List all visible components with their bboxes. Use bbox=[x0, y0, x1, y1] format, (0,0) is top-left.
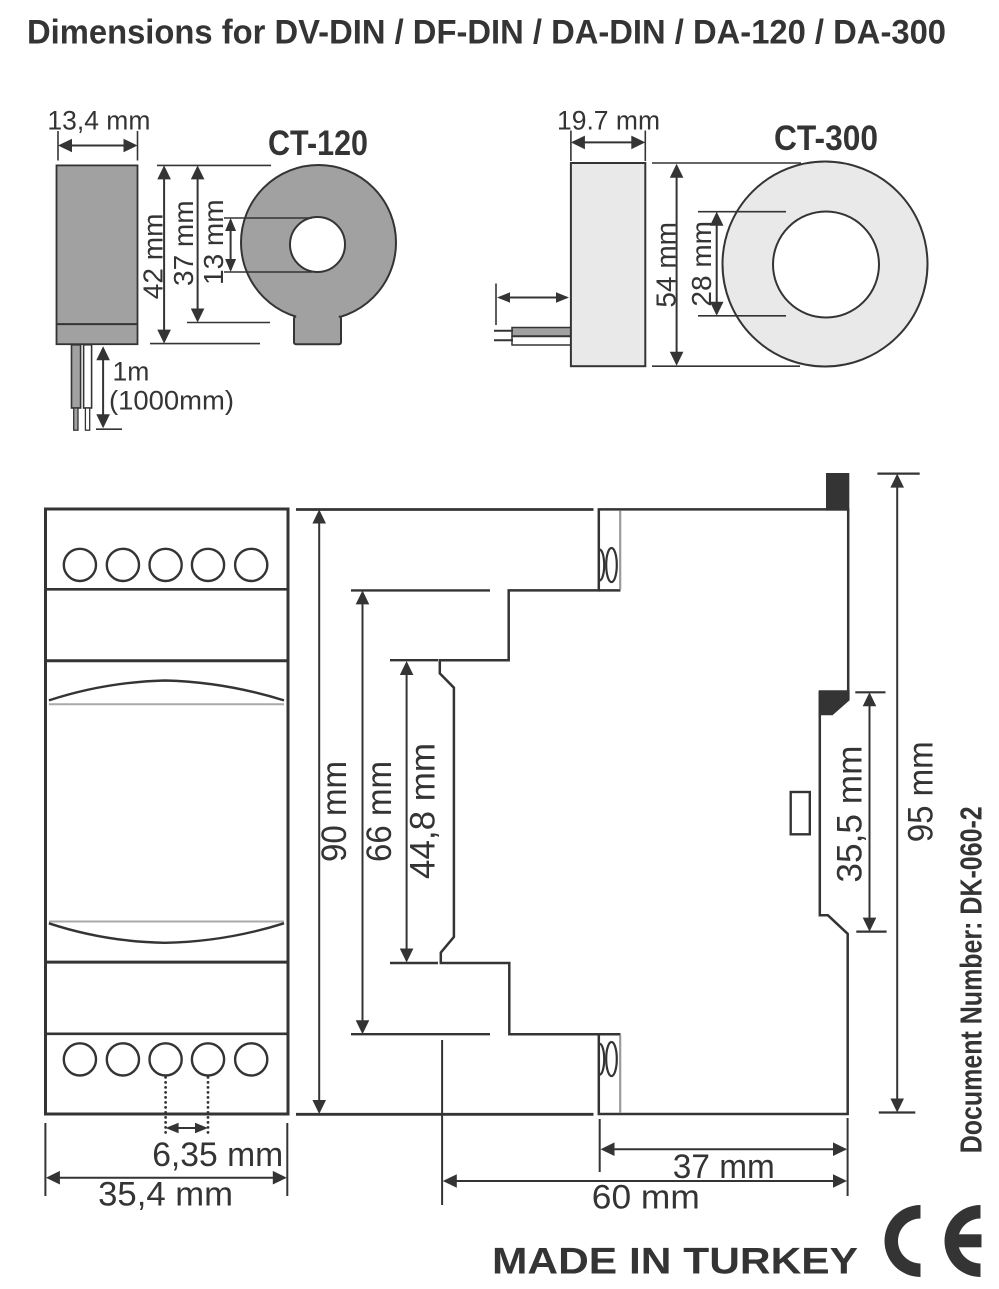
svg-text:MADE IN TURKEY: MADE IN TURKEY bbox=[492, 1240, 858, 1281]
svg-text:44,8 mm: 44,8 mm bbox=[403, 743, 442, 879]
svg-text:6,35 mm: 6,35 mm bbox=[152, 1136, 283, 1174]
svg-text:35,4 mm: 35,4 mm bbox=[98, 1176, 233, 1214]
svg-text:54 mm: 54 mm bbox=[650, 222, 681, 308]
svg-text:90 mm: 90 mm bbox=[315, 761, 354, 862]
svg-text:60 mm: 60 mm bbox=[592, 1179, 700, 1217]
svg-text:35,5 mm: 35,5 mm bbox=[831, 746, 870, 883]
svg-text:CT-120: CT-120 bbox=[268, 123, 368, 163]
svg-text:28 mm: 28 mm bbox=[686, 221, 717, 307]
svg-text:37 mm: 37 mm bbox=[168, 200, 199, 286]
svg-text:(1000mm): (1000mm) bbox=[109, 386, 234, 416]
svg-text:66 mm: 66 mm bbox=[360, 761, 399, 862]
svg-text:13,4 mm: 13,4 mm bbox=[47, 105, 150, 135]
svg-text:13 mm: 13 mm bbox=[198, 199, 229, 285]
svg-text:CT-300: CT-300 bbox=[774, 118, 878, 158]
svg-text:1m: 1m bbox=[113, 357, 150, 387]
svg-text:Document Number: DK-060-2: Document Number: DK-060-2 bbox=[953, 806, 988, 1153]
svg-text:Dimensions for DV-DIN / DF-DIN: Dimensions for DV-DIN / DF-DIN / DA-DIN … bbox=[27, 14, 946, 52]
svg-text:42 mm: 42 mm bbox=[137, 214, 168, 300]
svg-text:19.7 mm: 19.7 mm bbox=[557, 105, 660, 135]
svg-text:95 mm: 95 mm bbox=[902, 741, 941, 842]
